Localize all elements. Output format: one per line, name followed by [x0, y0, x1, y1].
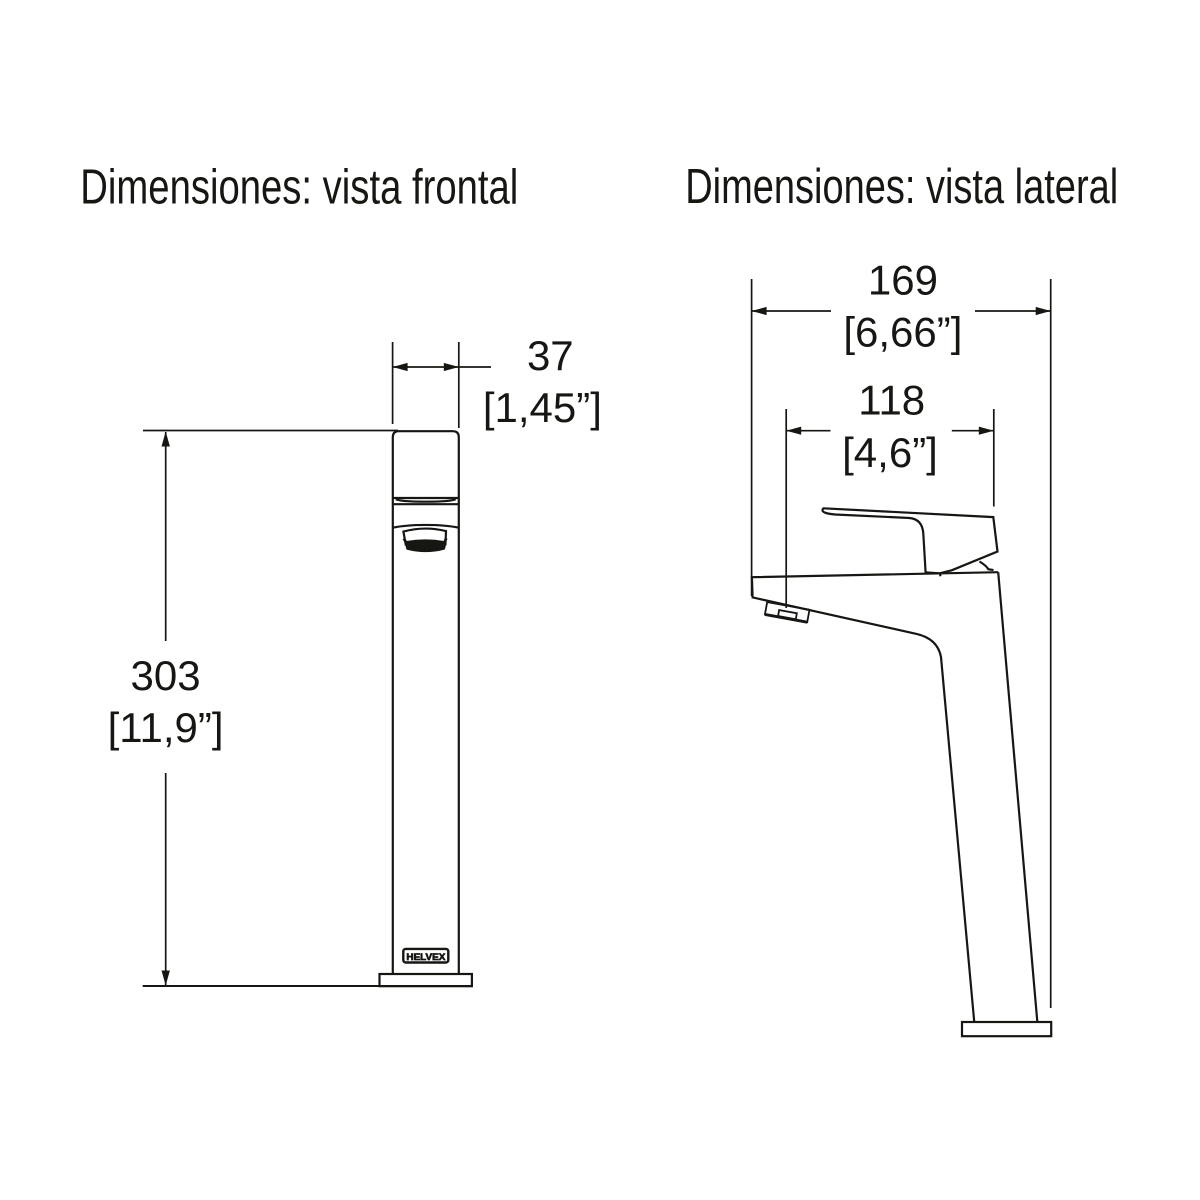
svg-text:118: 118	[858, 377, 925, 424]
svg-text:169: 169	[868, 257, 938, 304]
svg-text:Dimensiones: vista lateral: Dimensiones: vista lateral	[685, 160, 1118, 214]
svg-text:[11,9”]: [11,9”]	[108, 704, 224, 751]
svg-text:[1,45”]: [1,45”]	[483, 384, 602, 431]
svg-text:Dimensiones: vista frontal: Dimensiones: vista frontal	[80, 161, 518, 215]
svg-text:37: 37	[527, 332, 574, 379]
svg-text:[6,66”]: [6,66”]	[843, 309, 962, 356]
svg-text:HELVEX: HELVEX	[406, 952, 446, 963]
svg-text:303: 303	[131, 652, 201, 699]
svg-text:[4,6”]: [4,6”]	[842, 429, 938, 476]
